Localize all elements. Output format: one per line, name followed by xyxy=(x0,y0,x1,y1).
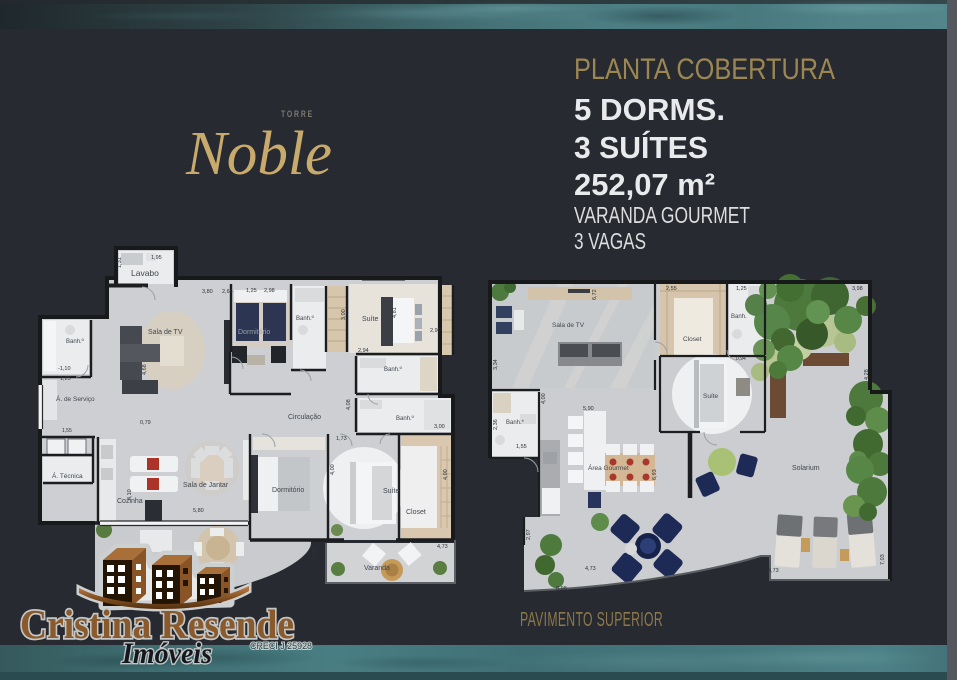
svg-text:3,34: 3,34 xyxy=(493,359,499,370)
svg-text:4,73: 4,73 xyxy=(768,568,779,574)
svg-text:0,94: 0,94 xyxy=(736,356,746,362)
svg-text:3,98: 3,98 xyxy=(852,286,863,292)
svg-text:2,36: 2,36 xyxy=(493,419,499,430)
svg-text:Solarium: Solarium xyxy=(792,465,820,472)
svg-text:Suíte: Suíte xyxy=(703,393,719,400)
svg-text:6,93: 6,93 xyxy=(652,469,658,480)
svg-text:CRECI J 25928: CRECI J 25928 xyxy=(250,641,312,652)
svg-text:4,00: 4,00 xyxy=(541,393,547,404)
svg-text:4,28: 4,28 xyxy=(864,369,870,380)
svg-text:6,72: 6,72 xyxy=(592,289,598,300)
svg-text:Imóveis: Imóveis xyxy=(121,637,212,670)
svg-text:Sala de TV: Sala de TV xyxy=(552,322,585,329)
svg-text:Banh.: Banh. xyxy=(731,314,747,320)
svg-text:2,55: 2,55 xyxy=(666,286,677,292)
svg-text:Closet: Closet xyxy=(683,336,702,343)
svg-text:2,97: 2,97 xyxy=(526,529,532,540)
svg-text:Área Gourmet: Área Gourmet xyxy=(588,463,629,472)
svg-text:4,73: 4,73 xyxy=(585,566,596,572)
svg-text:5,90: 5,90 xyxy=(583,406,594,412)
svg-text:Banh.*: Banh.* xyxy=(506,420,525,426)
svg-text:1,55: 1,55 xyxy=(516,444,527,450)
svg-text:8,98: 8,98 xyxy=(556,586,567,592)
svg-text:7,03: 7,03 xyxy=(880,554,886,565)
svg-text:1,25: 1,25 xyxy=(736,286,747,292)
